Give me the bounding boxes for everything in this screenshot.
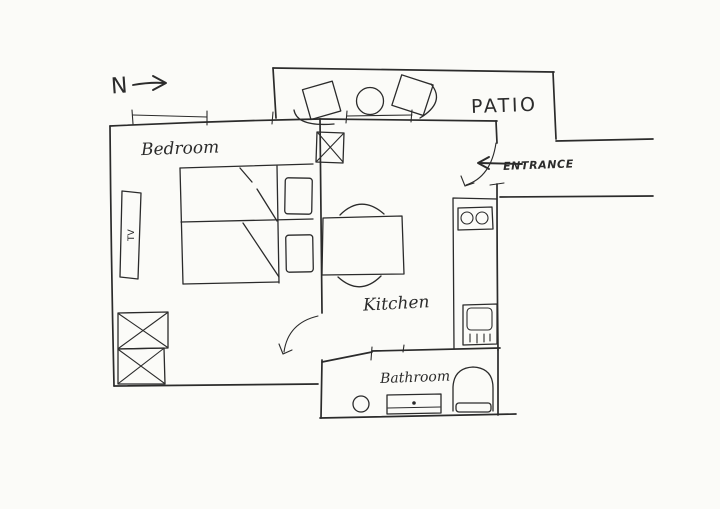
kitchen-sink-icon [463,304,497,345]
kitchen-window [346,110,412,123]
patio-label: PATIO [471,94,538,118]
chair-arc-icon [338,276,381,287]
entrance-label: ENTRANCE [503,157,574,172]
bathroom: Bathroom [320,345,516,418]
kitchen-counter [453,198,497,349]
bedroom-label: Bedroom [140,137,220,160]
toilet-icon [453,367,493,412]
floor-plan-sketch: N PATIO [0,0,720,509]
kitchen-walls [320,119,498,350]
pillow-icon [286,235,314,272]
patio: PATIO [273,68,556,139]
bathroom-door-ticks [371,345,404,360]
north-indicator: N [110,73,166,99]
wardrobe-icon [118,312,168,384]
kitchen: Kitchen [316,110,498,350]
entrance: ENTRANCE [461,143,574,186]
north-label: N [110,73,128,99]
tv-label: TV [127,229,137,242]
pillow-icon [285,178,313,214]
bathroom-label: Bathroom [379,369,451,387]
double-bed-icon [180,164,313,284]
washbasin-icon [353,396,369,412]
kitchen-label: Kitchen [362,292,430,316]
bedroom-door-swing [279,316,318,354]
vanity-icon [387,394,441,414]
patio-round-table-icon [357,88,384,115]
dining-table-icon [322,204,404,287]
wall-tv: TV [120,191,141,279]
chair-arc-icon [340,204,384,215]
stove-icon [458,207,493,230]
bedroom: Bedroom TV [110,110,320,386]
entrance-door-swing [461,143,496,186]
patio-armchair-left-icon [294,81,341,124]
patio-armchair-right-icon [392,75,437,118]
north-arrow-icon [133,76,166,90]
